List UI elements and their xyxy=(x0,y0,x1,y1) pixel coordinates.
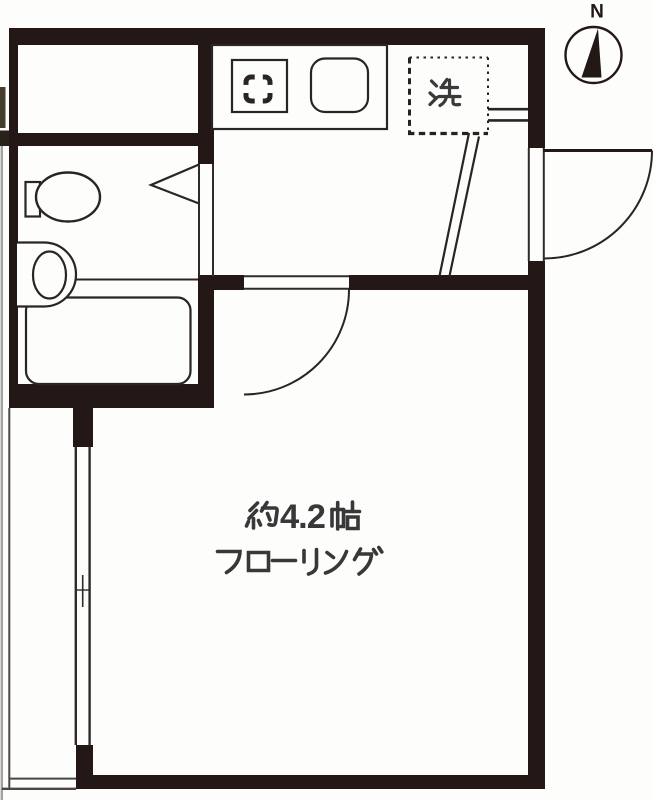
svg-text:4.2: 4.2 xyxy=(280,498,325,536)
svg-text:N: N xyxy=(590,2,604,23)
